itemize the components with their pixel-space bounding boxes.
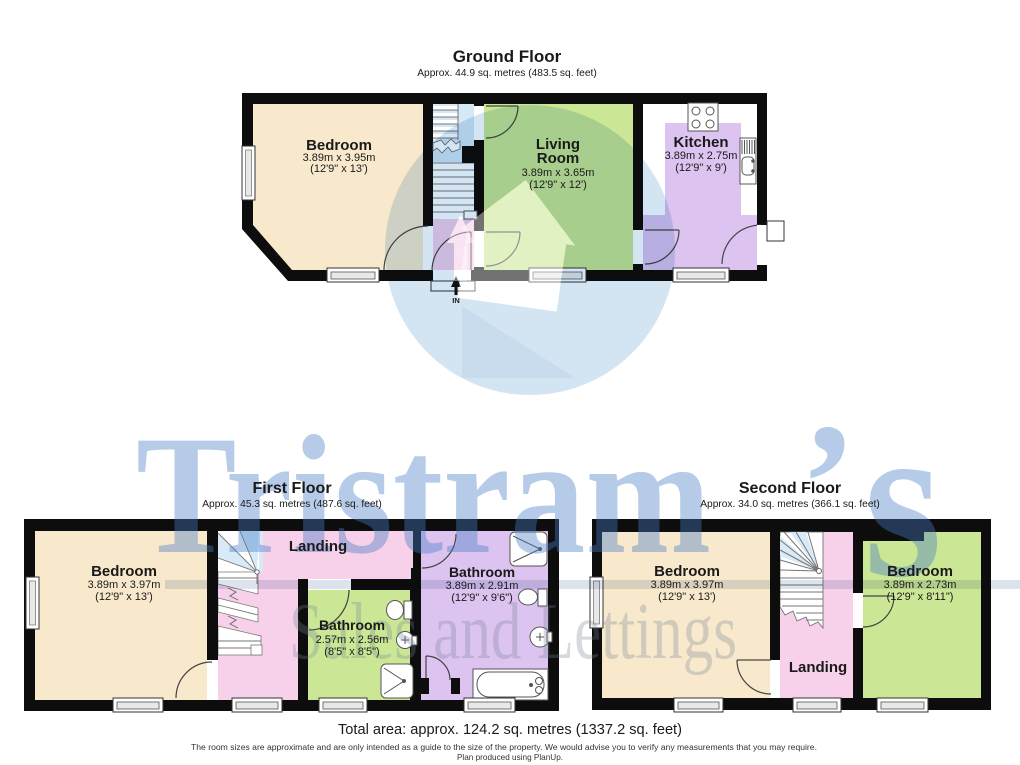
svg-text:3.89m x 3.97m: 3.89m x 3.97m — [651, 579, 724, 591]
svg-text:(12'9" x 9'): (12'9" x 9') — [675, 162, 727, 174]
svg-text:(8'5" x 8'5"): (8'5" x 8'5") — [324, 646, 379, 658]
svg-text:Approx. 45.3 sq. metres (487.6: Approx. 45.3 sq. metres (487.6 sq. feet) — [202, 499, 382, 510]
svg-text:Landing: Landing — [789, 659, 847, 676]
svg-text:Landing: Landing — [289, 538, 347, 555]
svg-text:3.89m x 2.73m: 3.89m x 2.73m — [884, 579, 957, 591]
svg-text:(12'9" x 13'): (12'9" x 13') — [95, 591, 153, 603]
svg-text:(12'9" x 8'11"): (12'9" x 8'11") — [887, 591, 954, 603]
svg-text:3.89m x 2.91m: 3.89m x 2.91m — [446, 580, 519, 592]
svg-text:Tristram: Tristram — [136, 401, 711, 589]
svg-text:3.89m x 2.75m: 3.89m x 2.75m — [665, 150, 738, 162]
svg-text:First Floor: First Floor — [252, 480, 331, 497]
svg-text:Plan produced using PlanUp.: Plan produced using PlanUp. — [457, 753, 563, 762]
svg-text:Bathroom: Bathroom — [449, 564, 515, 580]
svg-text:Approx. 44.9 sq. metres (483.5: Approx. 44.9 sq. metres (483.5 sq. feet) — [417, 68, 597, 79]
svg-text:Kitchen: Kitchen — [673, 134, 728, 151]
svg-text:(12'9" x 13'): (12'9" x 13') — [310, 163, 368, 175]
svg-text:Bathroom: Bathroom — [319, 617, 385, 633]
svg-text:(12'9" x 12'): (12'9" x 12') — [529, 179, 587, 191]
svg-text:The room sizes are approximate: The room sizes are approximate and are o… — [191, 742, 817, 752]
svg-text:Bedroom: Bedroom — [887, 563, 953, 580]
svg-text:IN: IN — [452, 296, 460, 305]
svg-text:2.57m x 2.56m: 2.57m x 2.56m — [316, 634, 389, 646]
svg-text:3.89m x 3.65m: 3.89m x 3.65m — [522, 167, 595, 179]
svg-text:Room: Room — [537, 150, 580, 167]
svg-text:Bedroom: Bedroom — [91, 563, 157, 580]
svg-text:(12'9" x 13'): (12'9" x 13') — [658, 591, 716, 603]
svg-text:Ground Floor: Ground Floor — [453, 47, 562, 66]
svg-text:(12'9" x 9'6"): (12'9" x 9'6") — [451, 592, 513, 604]
svg-text:Approx. 34.0 sq. metres (366.1: Approx. 34.0 sq. metres (366.1 sq. feet) — [700, 499, 880, 510]
svg-text:Bedroom: Bedroom — [654, 563, 720, 580]
svg-text:3.89m x 3.97m: 3.89m x 3.97m — [88, 579, 161, 591]
svg-text:Second Floor: Second Floor — [739, 480, 841, 497]
svg-text:Total area: approx. 124.2 sq.: Total area: approx. 124.2 sq. metres (13… — [338, 722, 682, 738]
